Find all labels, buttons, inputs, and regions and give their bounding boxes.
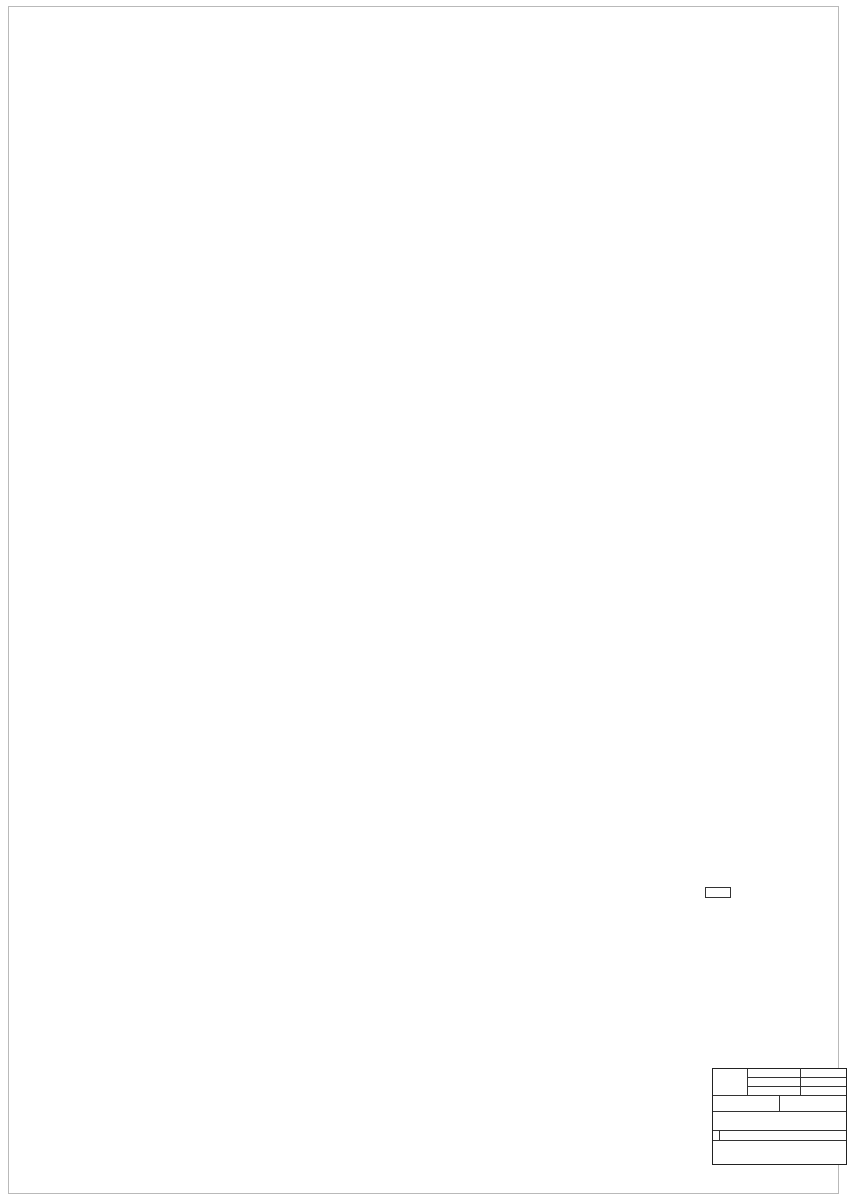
title-block (712, 1068, 847, 1165)
masonry-swatch (705, 887, 731, 898)
stavba-row (713, 1112, 846, 1131)
legend-materials-item (705, 887, 845, 898)
legend-materials (705, 884, 845, 898)
format-value (801, 1090, 846, 1092)
format-label (748, 1086, 801, 1096)
floor-plan-svg (0, 0, 847, 1200)
legend-rooms (705, 908, 845, 915)
datum-value (801, 1072, 846, 1074)
stupen-value (801, 1081, 846, 1083)
drawing-sheet (0, 0, 847, 1200)
scale-cell (713, 1096, 780, 1111)
sheet-number-cell (780, 1096, 846, 1111)
title-block-logo-cell (713, 1069, 748, 1095)
obsah-row (713, 1147, 846, 1164)
part-code (713, 1131, 720, 1140)
